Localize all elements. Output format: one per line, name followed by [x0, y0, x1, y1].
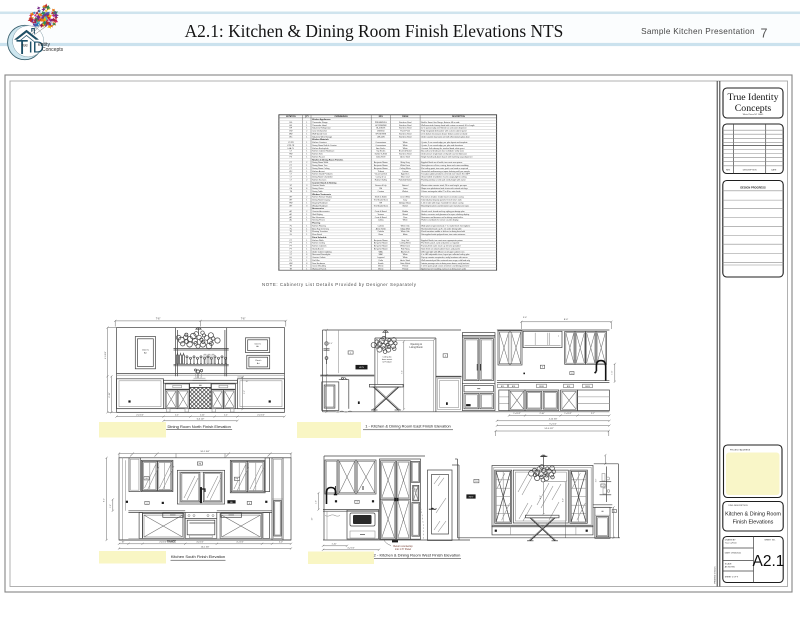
- svg-text:Satin Nickel: Satin Nickel: [400, 262, 411, 265]
- svg-text:Kohler K-3944: Kohler K-3944: [375, 153, 387, 156]
- svg-text:FL: FL: [290, 228, 292, 230]
- svg-text:Wide plank engineered oak; 7 i: Wide plank engineered oak; 7 in; matte f…: [421, 224, 470, 227]
- svg-text:9'-2 1/2": 9'-2 1/2": [549, 423, 557, 425]
- svg-text:Flat roman shades; inside moun: Flat roman shades; inside mount at windo…: [421, 196, 463, 199]
- svg-text:Kitchen & Dining Room: Kitchen & Dining Room: [725, 512, 781, 518]
- svg-text:Area Rug for Dining: Area Rug for Dining: [312, 227, 329, 230]
- svg-text:1: 1: [306, 145, 307, 147]
- svg-text:White Oak: White Oak: [401, 224, 410, 227]
- svg-text:Caesarstone: Caesarstone: [375, 144, 386, 147]
- svg-text:1'-1": 1'-1": [175, 414, 179, 416]
- svg-text:2'-5": 2'-5": [244, 390, 246, 394]
- svg-text:DESCRIPTION: DESCRIPTION: [743, 170, 757, 172]
- svg-text:Kitchen Accent: Kitchen Accent: [312, 170, 325, 173]
- svg-text:Dining Chairs: Dining Chairs: [312, 187, 323, 190]
- svg-text:Custom: Custom: [378, 190, 385, 193]
- svg-text:2'-11": 2'-11": [109, 392, 111, 397]
- svg-text:2'-0": 2'-0": [279, 542, 283, 544]
- svg-text:1'-4 1/2": 1'-4 1/2": [513, 413, 521, 415]
- svg-text:Grasscloth wallcovering at ope: Grasscloth wallcovering at open shelving…: [421, 170, 469, 173]
- svg-text:2: 2: [306, 179, 307, 181]
- svg-text:Panel Front: Panel Front: [400, 130, 410, 133]
- svg-text:X-base rectangular table 72 x: X-base rectangular table 72 x 40 in; sat…: [421, 190, 460, 193]
- svg-text:5 1/4 in paint grade crown at: 5 1/4 in paint grade crown at kitchen an…: [421, 265, 470, 268]
- svg-text:4'-6": 4'-6": [540, 495, 542, 499]
- svg-text:Walnut: Walnut: [402, 190, 408, 193]
- svg-text:Flanking window at sink wall;: Flanking window at sink wall; verify hei…: [421, 178, 466, 181]
- svg-text:DWG DESCRIPTION: DWG DESCRIPTION: [728, 505, 748, 507]
- svg-text:Stainless Steel: Stainless Steel: [399, 121, 412, 124]
- svg-text:Shelf Styling: Shelf Styling: [312, 213, 323, 216]
- svg-text:SB36: SB36: [539, 386, 544, 388]
- svg-text:8: 8: [306, 263, 307, 265]
- svg-text:1.25 in rods with rings; mount: 1.25 in rods with rings; mounted 6 in ab…: [421, 201, 463, 204]
- svg-text:Dining Room Ceiling: Dining Room Ceiling: [312, 168, 329, 170]
- svg-text:Mixed: Mixed: [403, 214, 408, 216]
- svg-text:White: White: [403, 253, 408, 256]
- svg-text:1: 1: [350, 352, 351, 354]
- svg-text:Ceiling White: Ceiling White: [400, 167, 411, 170]
- svg-text:B15: B15: [501, 386, 504, 388]
- svg-text:2: 2: [306, 197, 307, 199]
- svg-text:Sample Kitchen Presentation: Sample Kitchen Presentation: [641, 27, 755, 36]
- svg-text:Semi-gloss on all trim, casing: Semi-gloss on all trim, casing, base and…: [421, 164, 468, 167]
- svg-text:Kitchen Flooring: Kitchen Flooring: [312, 224, 326, 227]
- svg-text:Pot Filler: Pot Filler: [312, 259, 320, 262]
- svg-text:White: White: [403, 219, 408, 222]
- svg-text:Benjamin Moore: Benjamin Moore: [374, 164, 388, 167]
- svg-text:Eggshell finish; two coats ove: Eggshell finish; two coats over appropri…: [421, 239, 463, 242]
- svg-text:Serving Pieces: Serving Pieces: [312, 219, 325, 222]
- svg-text:1: 1: [306, 220, 307, 222]
- svg-text:1: 1: [306, 128, 307, 130]
- svg-text:1: 1: [306, 228, 307, 230]
- svg-text:DB24: DB24: [585, 386, 590, 388]
- svg-text:Dining Room Drapery: Dining Room Drapery: [312, 199, 330, 202]
- svg-text:Carlisle: Carlisle: [378, 230, 384, 233]
- svg-text:Wall-mounted chimney hood with: Wall-mounted chimney hood with custom su…: [421, 124, 474, 127]
- svg-text:KTR-TR: KTR-TR: [287, 145, 295, 147]
- svg-text:Currey & Co: Currey & Co: [376, 176, 386, 179]
- svg-text:1: 1: [306, 248, 307, 250]
- svg-text:White: White: [403, 256, 408, 259]
- svg-text:F8: F8: [199, 463, 201, 465]
- svg-text:PRINTED 9/3/2021: PRINTED 9/3/2021: [715, 566, 717, 584]
- svg-text:Kitchen Cabinets: Kitchen Cabinets: [312, 245, 326, 248]
- svg-text:Kitchen Faucet: Kitchen Faucet: [312, 155, 325, 158]
- svg-text:Ann Sacks: Ann Sacks: [376, 147, 385, 150]
- svg-text:Art: Art: [257, 362, 260, 365]
- svg-text:Kitchen Sink: Kitchen Sink: [312, 153, 323, 156]
- svg-text:B18: B18: [512, 386, 515, 388]
- svg-text:Fully integrated dishwasher wi: Fully integrated dishwasher with custom …: [421, 130, 467, 133]
- svg-text:24 in built-in microwave drawe: 24 in built-in microwave drawer below co…: [421, 132, 467, 135]
- svg-text:Ceramic 3x6 subway tile; stack: Ceramic 3x6 subway tile; stacked bond; w…: [421, 147, 465, 150]
- svg-text:Benjamin Moore: Benjamin Moore: [374, 167, 388, 170]
- svg-text:Window Treatments: Window Treatments: [312, 193, 332, 196]
- svg-text:1: 1: [306, 136, 307, 138]
- svg-text:2'-10": 2'-10": [539, 413, 544, 415]
- svg-text:Kitchen Counters: Kitchen Counters: [312, 141, 327, 144]
- svg-text:Ceiling White: Ceiling White: [400, 242, 411, 245]
- svg-text:Window Hardware: Window Hardware: [312, 204, 327, 207]
- svg-text:Counter Stools & Seating: Counter Stools & Seating: [312, 181, 337, 184]
- svg-text:AC: AC: [289, 213, 292, 216]
- svg-text:A2.1: A2.1: [753, 553, 785, 570]
- svg-text:1: 1: [306, 214, 307, 216]
- svg-text:Visual Comfort: Visual Comfort: [375, 173, 388, 176]
- svg-text:Primed: Primed: [402, 265, 408, 268]
- svg-text:Legrand: Legrand: [377, 256, 384, 259]
- svg-text:Kitchen Materials: Kitchen Materials: [312, 138, 329, 141]
- svg-text:HC1W60WM: HC1W60WM: [375, 125, 386, 127]
- svg-text:4 in LED adjustable trims; lay: 4 in LED adjustable trims; layout per re…: [421, 253, 469, 256]
- svg-text:Flat ceiling paint; two coats;: Flat ceiling paint; two coats; patch and…: [421, 167, 468, 170]
- svg-text:Quartz; 3 cm eased edge; per p: Quartz; 3 cm eased edge; per plan layout…: [421, 141, 467, 144]
- svg-text:Pop-up counter receptacles; ve: Pop-up counter receptacles; verify locat…: [421, 256, 468, 259]
- svg-text:10": 10": [312, 517, 314, 520]
- svg-text:1: 1: [306, 165, 307, 167]
- svg-text:Serena & Lily: Serena & Lily: [375, 184, 386, 187]
- svg-text:13: 13: [475, 481, 477, 483]
- svg-text:Under Cabinet Lighting: Under Cabinet Lighting: [312, 250, 331, 253]
- svg-text:NOTE: Cabinetry List Details: NOTE: Cabinetry List Details Provided by…: [262, 282, 417, 287]
- svg-text:Dining Room North Finish Eleva: Dining Room North Finish Elevation: [168, 424, 231, 429]
- svg-text:Juliska: Juliska: [378, 220, 385, 222]
- svg-text:Hudson Valley: Hudson Valley: [375, 179, 387, 181]
- svg-text:FINISH: FINISH: [402, 116, 409, 118]
- svg-text:Kitchen Roman Shades: Kitchen Roman Shades: [312, 196, 332, 199]
- svg-text:White Plains NY 10605: White Plains NY 10605: [743, 113, 764, 116]
- svg-text:2: 2: [306, 162, 307, 164]
- svg-text:Delta: Delta: [379, 259, 384, 262]
- svg-text:Counter Stools: Counter Stools: [312, 184, 325, 187]
- svg-text:Single handle pull-down faucet: Single handle pull-down faucet with matc…: [421, 155, 473, 158]
- svg-text:2: 2: [306, 131, 307, 133]
- svg-text:Annie Selke: Annie Selke: [376, 227, 386, 230]
- svg-text:Art: Art: [256, 345, 259, 348]
- svg-text:PL: PL: [290, 260, 292, 262]
- svg-text:Dining Room Trim: Dining Room Trim: [312, 164, 328, 167]
- svg-text:Marble: Marble: [402, 210, 408, 213]
- svg-text:WAC: WAC: [379, 253, 384, 256]
- svg-text:HW: HW: [289, 263, 292, 265]
- svg-text:1: 1: [306, 225, 307, 227]
- svg-text:into 1'-6" Panel: into 1'-6" Panel: [395, 548, 412, 551]
- svg-text:1: 1: [306, 269, 307, 271]
- svg-text:Interior passage sets at dinin: Interior passage sets at dining room doo…: [421, 262, 469, 265]
- svg-text:Benjamin Moore: Benjamin Moore: [374, 245, 388, 248]
- svg-text:Counter Outlets: Counter Outlets: [312, 256, 325, 259]
- svg-text:DW2450: DW2450: [377, 131, 384, 133]
- svg-text:16'-1 3/4": 16'-1 3/4": [201, 546, 210, 548]
- svg-text:Stainless Steel: Stainless Steel: [399, 124, 412, 127]
- svg-text:4'-0 1/2": 4'-0 1/2": [196, 542, 204, 544]
- svg-text:White: White: [403, 144, 408, 147]
- svg-text:Arctic Steel: Arctic Steel: [400, 155, 410, 158]
- svg-text:AS NOTED: AS NOTED: [725, 566, 736, 569]
- svg-text:HW: HW: [289, 202, 292, 204]
- svg-text:Slope arm upholstered side cha: Slope arm upholstered side chairs with n…: [421, 187, 467, 190]
- svg-text:Flush transition saddle at kit: Flush transition saddle at kitchen to di…: [421, 230, 465, 233]
- svg-text:Dining Room Walls: Dining Room Walls: [312, 162, 328, 164]
- svg-text:1: 1: [306, 251, 307, 253]
- svg-text:FURNISHINGS: FURNISHINGS: [335, 116, 349, 118]
- svg-text:SHEET 2 OF 9: SHEET 2 OF 9: [725, 577, 739, 579]
- svg-text:Stainless Steel: Stainless Steel: [399, 127, 412, 130]
- svg-text:Emtek: Emtek: [378, 262, 383, 265]
- svg-text:Art: Art: [144, 352, 147, 355]
- svg-text:Kitchen & Dining Room Finishes: Kitchen & Dining Room Finishes: [312, 158, 344, 161]
- svg-text:G5: G5: [145, 478, 148, 480]
- svg-text:7: 7: [761, 27, 768, 41]
- svg-text:Site-applied matte polyurethan: Site-applied matte polyurethane; two coa…: [421, 233, 465, 236]
- svg-text:Mounting brackets and tensione: Mounting brackets and tensioners per man…: [421, 204, 469, 207]
- svg-text:SHEET NO.: SHEET NO.: [764, 540, 776, 542]
- svg-text:to Pendant: to Pendant: [382, 360, 392, 363]
- svg-text:1'-6": 1'-6": [316, 500, 318, 504]
- svg-text:1: 1: [306, 246, 307, 248]
- svg-text:1: 1: [306, 266, 307, 268]
- svg-text:Stainless Steel: Stainless Steel: [399, 132, 412, 135]
- svg-text:rue: rue: [22, 43, 29, 48]
- svg-text:CT-PR: CT-PR: [288, 142, 294, 144]
- svg-text:PRD486WDG: PRD486WDG: [375, 122, 387, 124]
- svg-text:REV: REV: [726, 170, 731, 172]
- svg-text:Benjamin Moore: Benjamin Moore: [374, 242, 388, 245]
- svg-text:Finish Elevations: Finish Elevations: [733, 520, 774, 526]
- svg-text:Flooring Transition: Flooring Transition: [312, 230, 328, 233]
- svg-text:DESCRIPTION: DESCRIPTION: [452, 116, 466, 118]
- svg-text:Eggshell finish on all walls;: Eggshell finish on all walls; two coats …: [421, 161, 462, 164]
- svg-text:PROJECT ADDRESS: PROJECT ADDRESS: [730, 448, 751, 451]
- svg-text:Flooring: Flooring: [312, 223, 321, 225]
- svg-text:1: 1: [306, 191, 307, 193]
- svg-text:1: 1: [306, 200, 307, 202]
- svg-text:Door Hardware: Door Hardware: [312, 262, 325, 265]
- svg-text:Aged Iron: Aged Iron: [401, 173, 409, 176]
- svg-text:Polished Nickel: Polished Nickel: [399, 179, 413, 181]
- svg-text:SPO30TM/S: SPO30TM/S: [375, 133, 386, 135]
- svg-text:B18: B18: [567, 386, 570, 388]
- svg-text:Under-mount single bowl; verif: Under-mount single bowl; verify with cou…: [421, 153, 467, 156]
- svg-text:Flat finish; patch, sand and p: Flat finish; patch, sand and prime as re…: [421, 242, 459, 245]
- svg-text:4'-2 1/2": 4'-2 1/2": [347, 548, 355, 550]
- svg-text:T: T: [16, 37, 28, 59]
- svg-text:1: 1: [306, 260, 307, 262]
- svg-text:Kitchen Ceiling: Kitchen Ceiling: [312, 242, 325, 245]
- svg-text:Wall mounted pot filler center: Wall mounted pot filler centered over ra…: [421, 259, 470, 262]
- svg-text:White: White: [403, 147, 408, 150]
- svg-text:Matte: Matte: [403, 233, 408, 236]
- svg-text:10": 10": [122, 542, 125, 544]
- svg-text:Recessed Downlights: Recessed Downlights: [312, 253, 330, 256]
- svg-text:Thermador Hood: Thermador Hood: [312, 124, 326, 127]
- svg-text:Stemware and barware set for d: Stemware and barware set for dining room…: [421, 216, 463, 219]
- svg-text:L&A-TL: L&A-TL: [288, 147, 294, 150]
- svg-text:Client's: Client's: [254, 342, 261, 345]
- svg-text:2: 2: [306, 257, 307, 259]
- svg-text:RANGE: RANGE: [167, 540, 176, 543]
- svg-text:White Dove: White Dove: [400, 245, 410, 248]
- svg-text:Books, ceramics and glassware: Books, ceramics and glassware for open s…: [421, 213, 469, 216]
- svg-text:A2.1: Kitchen & Dining Room Fi: A2.1: Kitchen & Dining Room Finish Eleva…: [185, 21, 564, 41]
- svg-text:Brushed Nickel: Brushed Nickel: [399, 150, 412, 153]
- svg-text:Woven rattan counter stool; 24: Woven rattan counter stool; 24 in seat h…: [421, 184, 467, 187]
- svg-text:Stainless Steel: Stainless Steel: [399, 135, 412, 138]
- svg-text:1 - Kitchen & Dining Room East: 1 - Kitchen & Dining Room East Finish El…: [365, 424, 451, 429]
- svg-text:MFG: MFG: [379, 116, 384, 118]
- svg-text:1: 1: [306, 174, 307, 176]
- svg-text:7'-6": 7'-6": [401, 370, 403, 374]
- svg-text:Bar Glassware: Bar Glassware: [312, 216, 324, 219]
- svg-text:Cove Dishwasher: Cove Dishwasher: [312, 130, 327, 133]
- svg-text:Factory finish satin; touch up: Factory finish satin; touch up kit to be…: [421, 245, 460, 248]
- svg-text:SCALE:: SCALE:: [725, 563, 733, 566]
- svg-text:Metrie: Metrie: [378, 268, 383, 271]
- svg-text:White: White: [403, 141, 408, 144]
- svg-text:Crown Moulding: Crown Moulding: [312, 265, 326, 268]
- svg-text:6: 6: [249, 503, 250, 505]
- svg-text:White Dove: White Dove: [400, 164, 410, 167]
- svg-text:Dining Room Built-In Counter: Dining Room Built-In Counter: [312, 144, 337, 147]
- svg-text:7'-6": 7'-6": [156, 318, 161, 320]
- svg-text:Primed: Primed: [402, 268, 408, 271]
- svg-text:Natural: Natural: [402, 184, 409, 187]
- svg-text:6: 6: [306, 188, 307, 190]
- svg-text:1: 1: [306, 154, 307, 156]
- svg-text:Kitchen Backsplash: Kitchen Backsplash: [312, 147, 329, 150]
- svg-text:True Identity: True Identity: [727, 92, 778, 103]
- svg-text:x: x: [558, 336, 559, 338]
- svg-text:Delta 9159: Delta 9159: [376, 155, 385, 158]
- svg-text:Quartz; 3 cm eased edge; per p: Quartz; 3 cm eased edge; per plan and el…: [421, 144, 463, 147]
- svg-text:1: 1: [306, 151, 307, 153]
- svg-text:14'-0 1/2": 14'-0 1/2": [544, 428, 553, 430]
- svg-text:16'-1 3/4": 16'-1 3/4": [200, 451, 209, 453]
- svg-text:Kitchen Cabinet Hardware: Kitchen Cabinet Hardware: [312, 150, 334, 153]
- svg-text:White Oak: White Oak: [401, 230, 410, 233]
- svg-text:Carlisle: Carlisle: [378, 224, 384, 227]
- svg-text:Sub-Zero Refrigerator: Sub-Zero Refrigerator: [312, 127, 331, 130]
- svg-text:3: 3: [542, 367, 543, 369]
- svg-text:2: 2: [306, 211, 307, 213]
- svg-text:2 - Kitchen & Dining Room West: 2 - Kitchen & Dining Room West Finish El…: [374, 552, 461, 557]
- svg-text:1'-10": 1'-10": [331, 544, 336, 546]
- svg-text:1: 1: [306, 168, 307, 170]
- svg-text:Various: Various: [378, 213, 384, 216]
- svg-text:1: 1: [306, 240, 307, 242]
- svg-text:Kitchen Sconces: Kitchen Sconces: [312, 178, 326, 181]
- svg-text:10": 10": [246, 381, 249, 383]
- svg-text:DATE: DATE: [771, 169, 777, 172]
- svg-text:Benjamin Moore: Benjamin Moore: [374, 161, 388, 164]
- svg-text:MW: MW: [289, 133, 293, 135]
- svg-text:WAC: WAC: [379, 250, 384, 253]
- svg-text:DRAWN BY:: DRAWN BY:: [725, 539, 737, 542]
- svg-text:Hand-knotted wool rug 9 x 12 u: Hand-knotted wool rug 9 x 12 under dinin…: [421, 227, 461, 230]
- svg-text:BI-42SD/S: BI-42SD/S: [376, 128, 386, 130]
- svg-text:Kitchen Island Pendants: Kitchen Island Pendants: [312, 173, 332, 176]
- svg-text:1'-1": 1'-1": [224, 414, 228, 416]
- svg-text:1'-6": 1'-6": [110, 504, 112, 508]
- svg-text:Hale Navy: Hale Navy: [401, 248, 410, 250]
- svg-text:Linen: Linen: [403, 188, 408, 190]
- svg-text:1: 1: [306, 234, 307, 236]
- svg-text:4: 4: [306, 254, 307, 256]
- svg-text:3: 3: [306, 185, 307, 187]
- svg-text:Aluminum: Aluminum: [401, 250, 410, 253]
- svg-text:3: 3: [306, 205, 307, 207]
- svg-text:Traci LaPorte: Traci LaPorte: [725, 542, 738, 545]
- svg-text:4: 4: [356, 502, 357, 504]
- svg-text:1: 1: [306, 142, 307, 144]
- svg-text:Applied panel moulding wainsco: Applied panel moulding wainscot at dinin…: [421, 268, 466, 271]
- svg-text:Platters and bowls for server: Platters and bowls for server counter di…: [421, 219, 458, 222]
- svg-text:7: 7: [602, 485, 603, 487]
- svg-text:Satin finish on island cabinet: Satin finish on island cabinet faces and…: [421, 247, 460, 250]
- svg-text:4: 4: [445, 355, 446, 357]
- svg-text:Built-In Smart Gas Range; Exte: Built-In Smart Gas Range; Exterior 48 in…: [421, 121, 459, 124]
- svg-text:1: 1: [306, 202, 307, 204]
- svg-text:42 in panel-ready unit; filter: 42 in panel-ready unit; filtered ice and…: [421, 127, 467, 130]
- svg-text:3'-0": 3'-0": [329, 343, 333, 345]
- svg-text:Thermador Range: Thermador Range: [312, 121, 327, 124]
- svg-text:1'-6": 1'-6": [611, 370, 613, 374]
- svg-text:Concepts: Concepts: [735, 103, 772, 114]
- svg-text:2'-6 1/2": 2'-6 1/2": [159, 542, 167, 544]
- svg-text:Counter Accessories: Counter Accessories: [312, 210, 329, 213]
- svg-text:Client's: Client's: [142, 349, 150, 352]
- svg-text:4'-1 1/2": 4'-1 1/2": [236, 542, 244, 544]
- svg-text:2'-7": 2'-7": [591, 413, 595, 415]
- svg-text:NOTATION: NOTATION: [286, 115, 296, 118]
- svg-text:1: 1: [306, 217, 307, 219]
- svg-text:1: 1: [306, 125, 307, 127]
- svg-text:1'-4 1/2": 1'-4 1/2": [564, 413, 572, 415]
- svg-text:DESIGN PROGRESS: DESIGN PROGRESS: [740, 185, 766, 189]
- svg-text:Kitchen Walls: Kitchen Walls: [312, 239, 323, 242]
- svg-text:UW-24/S: UW-24/S: [377, 136, 385, 138]
- svg-text:Tailored pleat drapery panels;: Tailored pleat drapery panels; french re…: [421, 199, 461, 202]
- svg-text:1: 1: [306, 231, 307, 233]
- svg-text:8'-0": 8'-0": [104, 498, 106, 502]
- svg-text:Clear: Clear: [403, 216, 408, 219]
- svg-text:6'-4 1/2": 6'-4 1/2": [197, 419, 205, 421]
- svg-text:1: 1: [306, 177, 307, 179]
- svg-text:Caesarstone: Caesarstone: [375, 141, 386, 144]
- svg-text:1: 1: [306, 148, 307, 150]
- svg-text:1: 1: [306, 133, 307, 135]
- svg-text:Concepts: Concepts: [42, 47, 64, 53]
- svg-text:Antique Brass: Antique Brass: [399, 201, 411, 204]
- svg-text:1: 1: [306, 156, 307, 158]
- svg-text:Bar pulls and knobs per door s: Bar pulls and knobs per door schedule; v…: [421, 150, 464, 153]
- svg-text:2: 2: [146, 503, 147, 505]
- svg-text:Dining Room Chandelier: Dining Room Chandelier: [312, 176, 333, 179]
- svg-text:Custom: Custom: [402, 170, 409, 173]
- svg-text:EL: EL: [290, 257, 292, 259]
- svg-text:1: 1: [306, 122, 307, 124]
- svg-text:Crate & Barrel: Crate & Barrel: [375, 210, 388, 213]
- svg-text:Silver Leaf: Silver Leaf: [401, 176, 410, 179]
- svg-text:Floor Finish: Floor Finish: [312, 233, 322, 236]
- svg-text:8'-0": 8'-0": [562, 498, 564, 502]
- svg-text:Benjamin Moore: Benjamin Moore: [374, 239, 388, 242]
- svg-text:1: 1: [306, 171, 307, 173]
- svg-text:Top Knobs: Top Knobs: [376, 151, 385, 153]
- svg-text:7'-6": 7'-6": [241, 318, 246, 320]
